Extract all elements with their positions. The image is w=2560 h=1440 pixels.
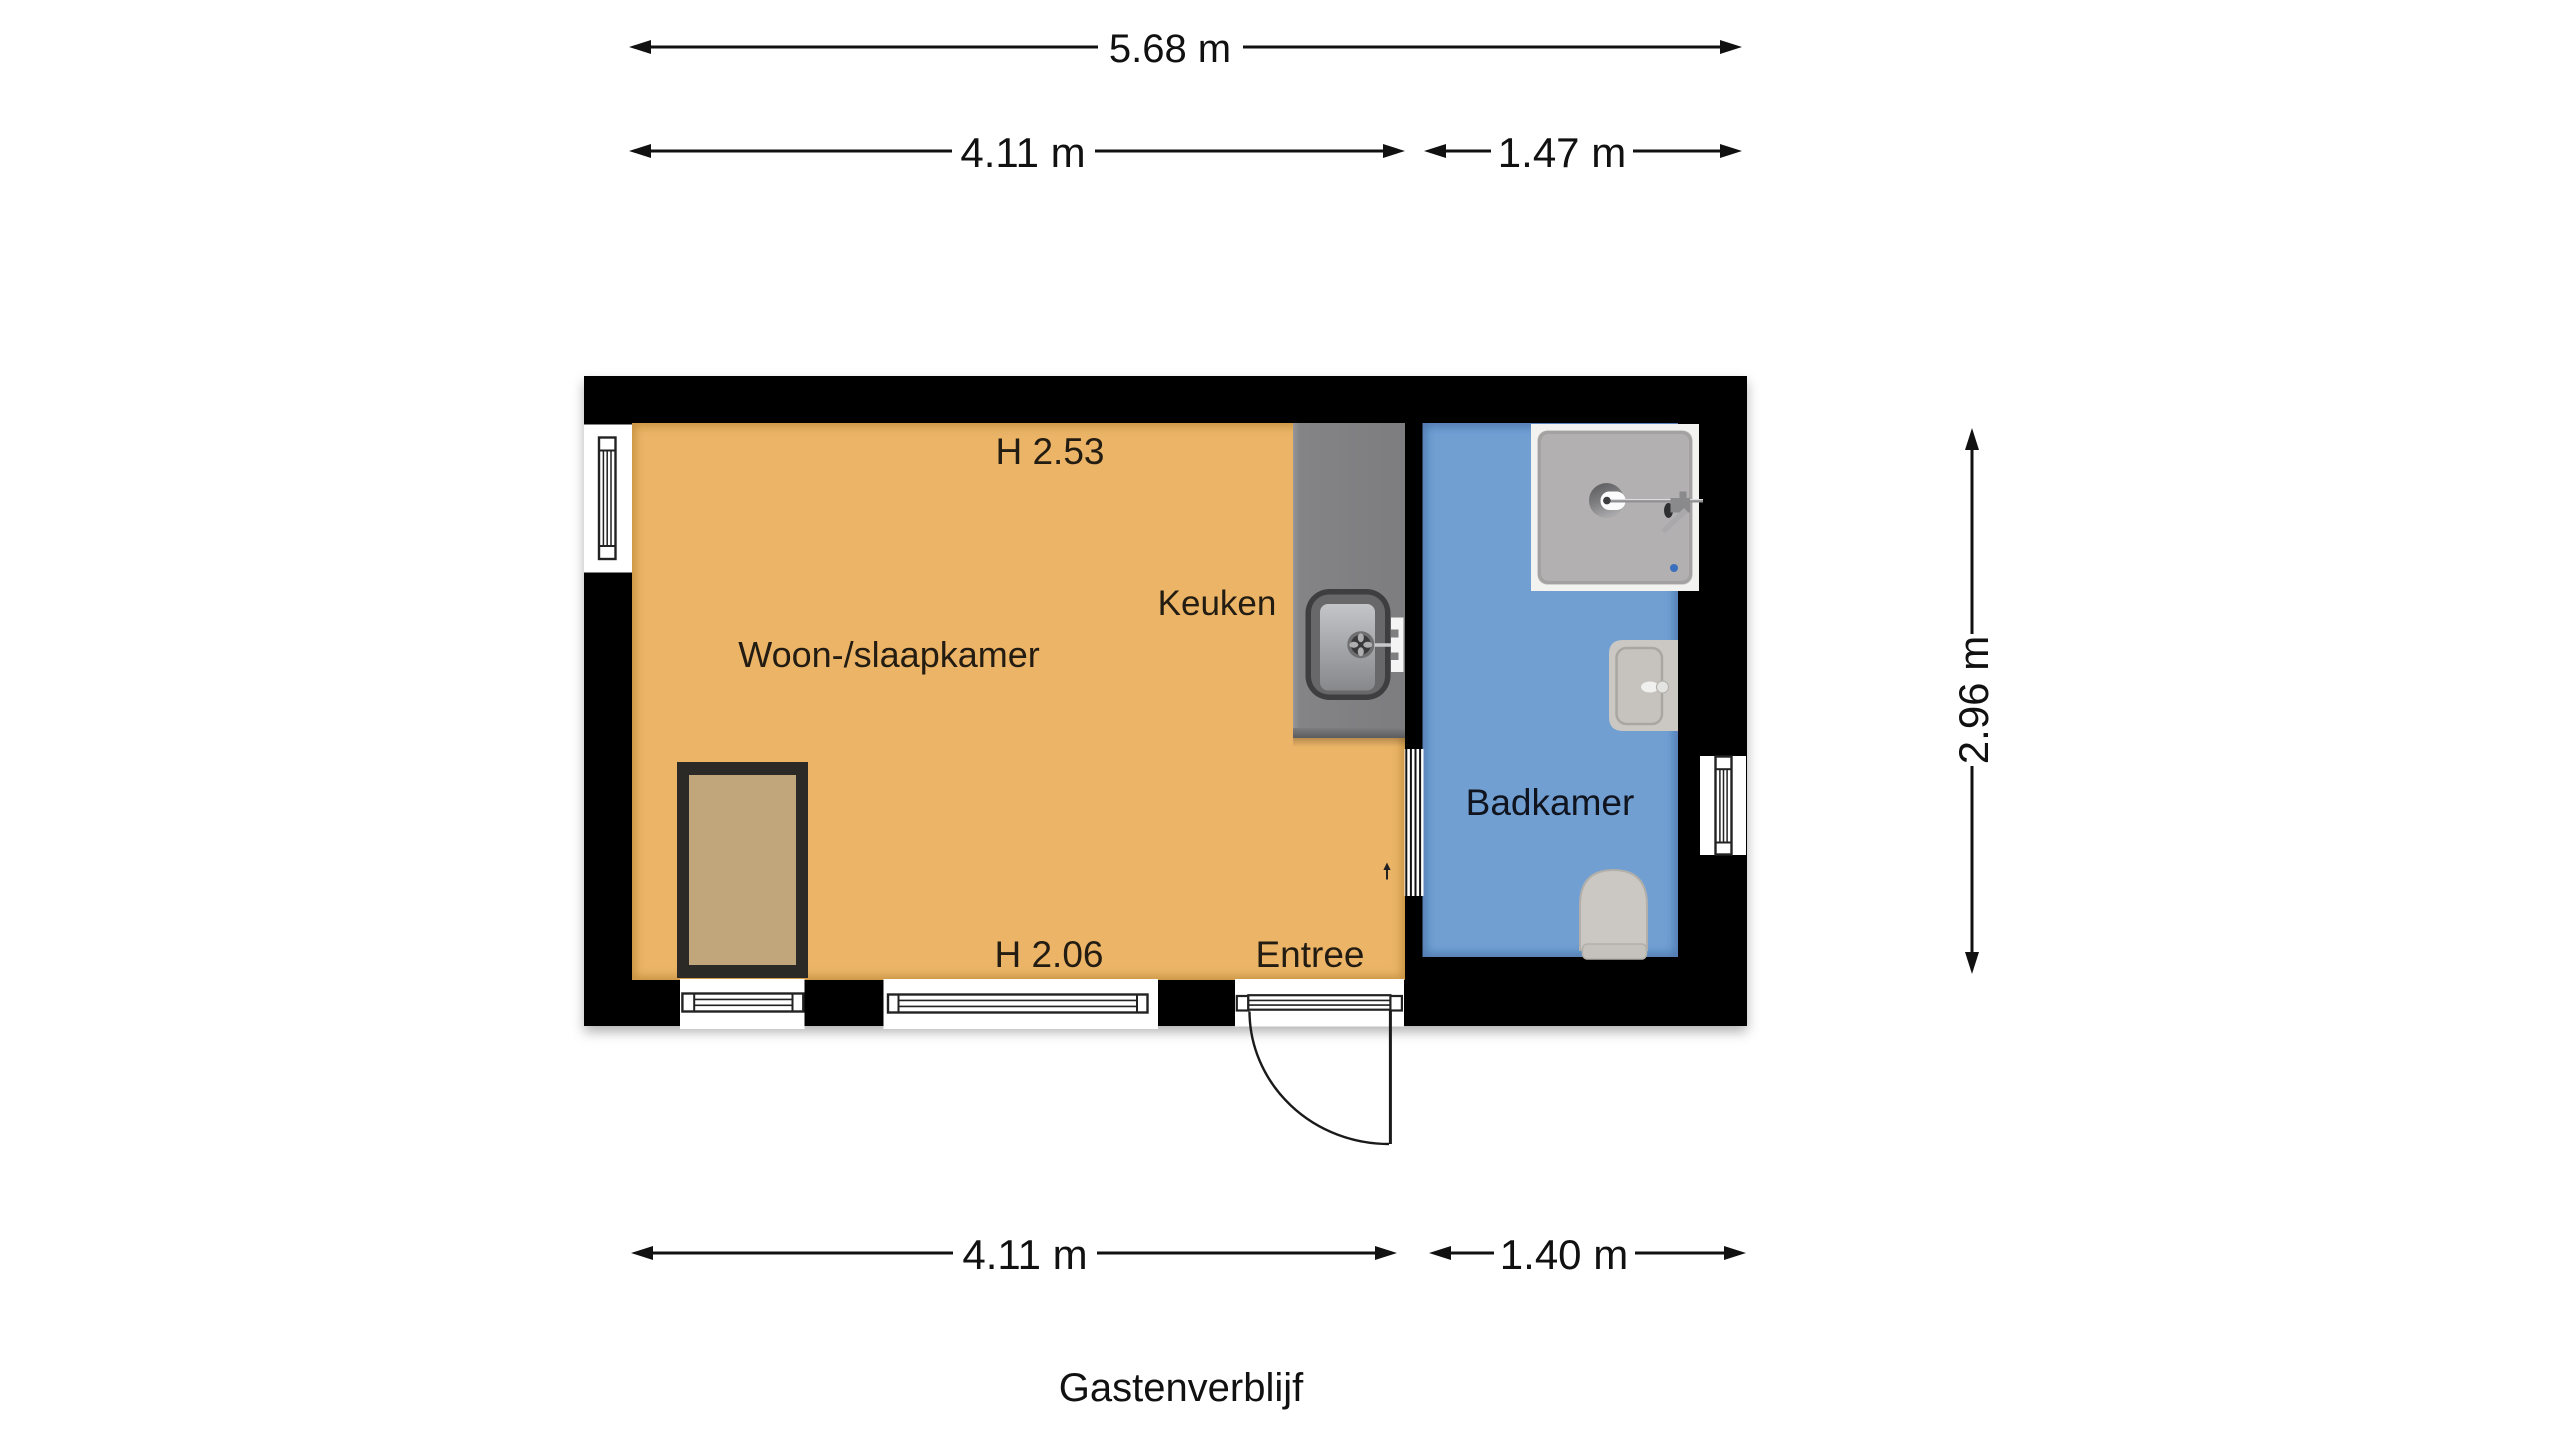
- svg-text:1.40 m: 1.40 m: [1500, 1231, 1628, 1278]
- svg-text:2.96 m: 2.96 m: [1950, 636, 1997, 764]
- svg-text:1.47 m: 1.47 m: [1498, 129, 1626, 176]
- svg-text:Keuken: Keuken: [1158, 584, 1277, 623]
- svg-text:H 2.53: H 2.53: [995, 431, 1104, 472]
- svg-text:Badkamer: Badkamer: [1466, 782, 1635, 823]
- svg-text:Woon-/slaapkamer: Woon-/slaapkamer: [738, 634, 1039, 675]
- svg-text:4.11 m: 4.11 m: [962, 1231, 1087, 1278]
- svg-text:4.11 m: 4.11 m: [960, 129, 1085, 176]
- svg-text:Gastenverblijf: Gastenverblijf: [1059, 1366, 1304, 1410]
- svg-text:Entree: Entree: [1255, 934, 1364, 975]
- svg-text:H 2.06: H 2.06: [994, 934, 1103, 975]
- svg-text:5.68 m: 5.68 m: [1109, 27, 1231, 71]
